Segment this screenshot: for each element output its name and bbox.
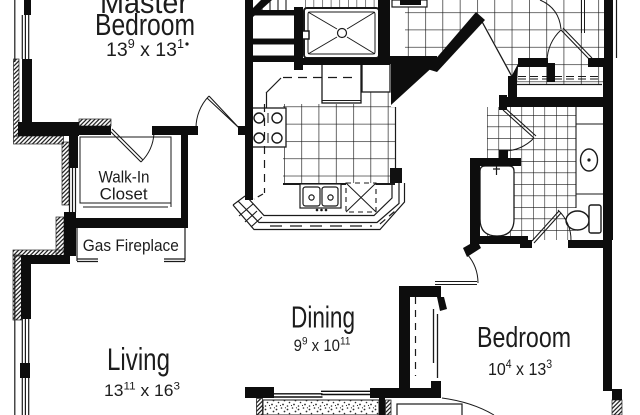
- svg-text:1311 x 163: 1311 x 163: [104, 380, 180, 400]
- svg-text:139 x 131: 139 x 131: [106, 36, 184, 60]
- svg-text:Bedroom: Bedroom: [477, 322, 571, 354]
- svg-text:Dining: Dining: [291, 300, 355, 334]
- svg-text:Walk-In: Walk-In: [99, 169, 150, 187]
- svg-text:Gas Fireplace: Gas Fireplace: [83, 237, 179, 255]
- svg-text:Closet: Closet: [100, 186, 149, 204]
- svg-text:104 x 133: 104 x 133: [488, 358, 552, 379]
- svg-text:Living: Living: [107, 342, 170, 377]
